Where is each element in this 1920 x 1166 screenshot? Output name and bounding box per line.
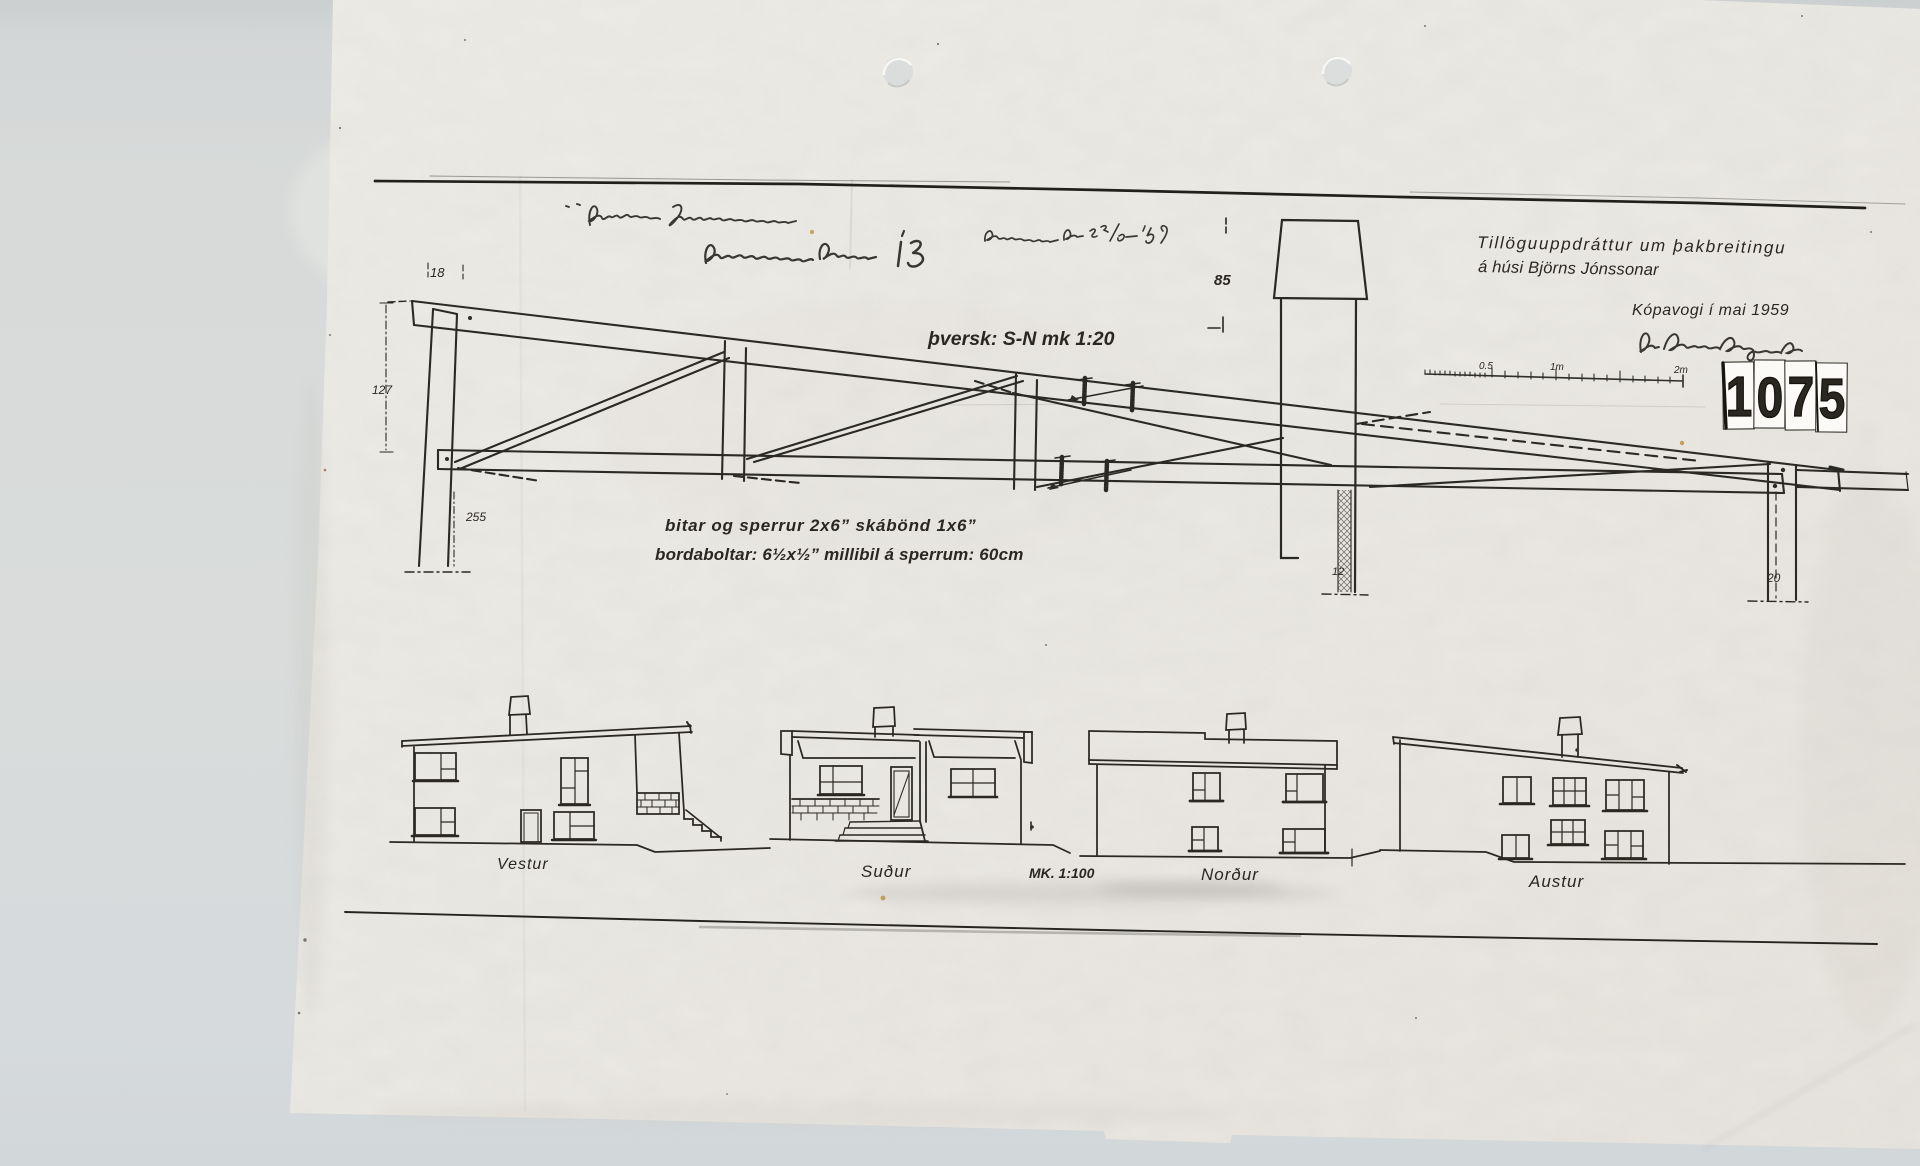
- svg-text:20: 20: [1766, 571, 1781, 585]
- svg-text:Vestur: Vestur: [497, 856, 549, 873]
- svg-text:255: 255: [465, 510, 486, 524]
- svg-text:5: 5: [1819, 367, 1846, 431]
- svg-text:2m: 2m: [1673, 365, 1688, 376]
- svg-text:1m: 1m: [1550, 362, 1564, 373]
- svg-text:85: 85: [1214, 272, 1231, 289]
- svg-text:7: 7: [1788, 365, 1815, 429]
- svg-text:á húsi Björns Jónssonar: á húsi Björns Jónssonar: [1478, 258, 1660, 279]
- svg-text:Suður: Suður: [861, 862, 912, 881]
- svg-text:bitar og sperrur 2x6” skábönd: bitar og sperrur 2x6” skábönd 1x6”: [665, 516, 977, 535]
- svg-text:MK. 1:100: MK. 1:100: [1029, 865, 1095, 881]
- svg-text:þversk: S-N mk 1:20: þversk: S-N mk 1:20: [927, 328, 1115, 350]
- svg-text:12: 12: [1332, 566, 1344, 578]
- svg-text:1: 1: [1726, 365, 1753, 429]
- svg-text:Austur: Austur: [1528, 872, 1584, 891]
- svg-text:0.5: 0.5: [1479, 361, 1493, 372]
- svg-text:bordaboltar: 6½x½” millibil á: bordaboltar: 6½x½” millibil á sperrum: 6…: [655, 545, 1024, 564]
- svg-text:Kópavogi í mai 1959: Kópavogi í mai 1959: [1632, 302, 1789, 319]
- svg-text:0: 0: [1757, 366, 1784, 430]
- svg-text:127: 127: [372, 383, 393, 397]
- svg-text:Norður: Norður: [1201, 865, 1259, 884]
- svg-text:18: 18: [430, 265, 445, 280]
